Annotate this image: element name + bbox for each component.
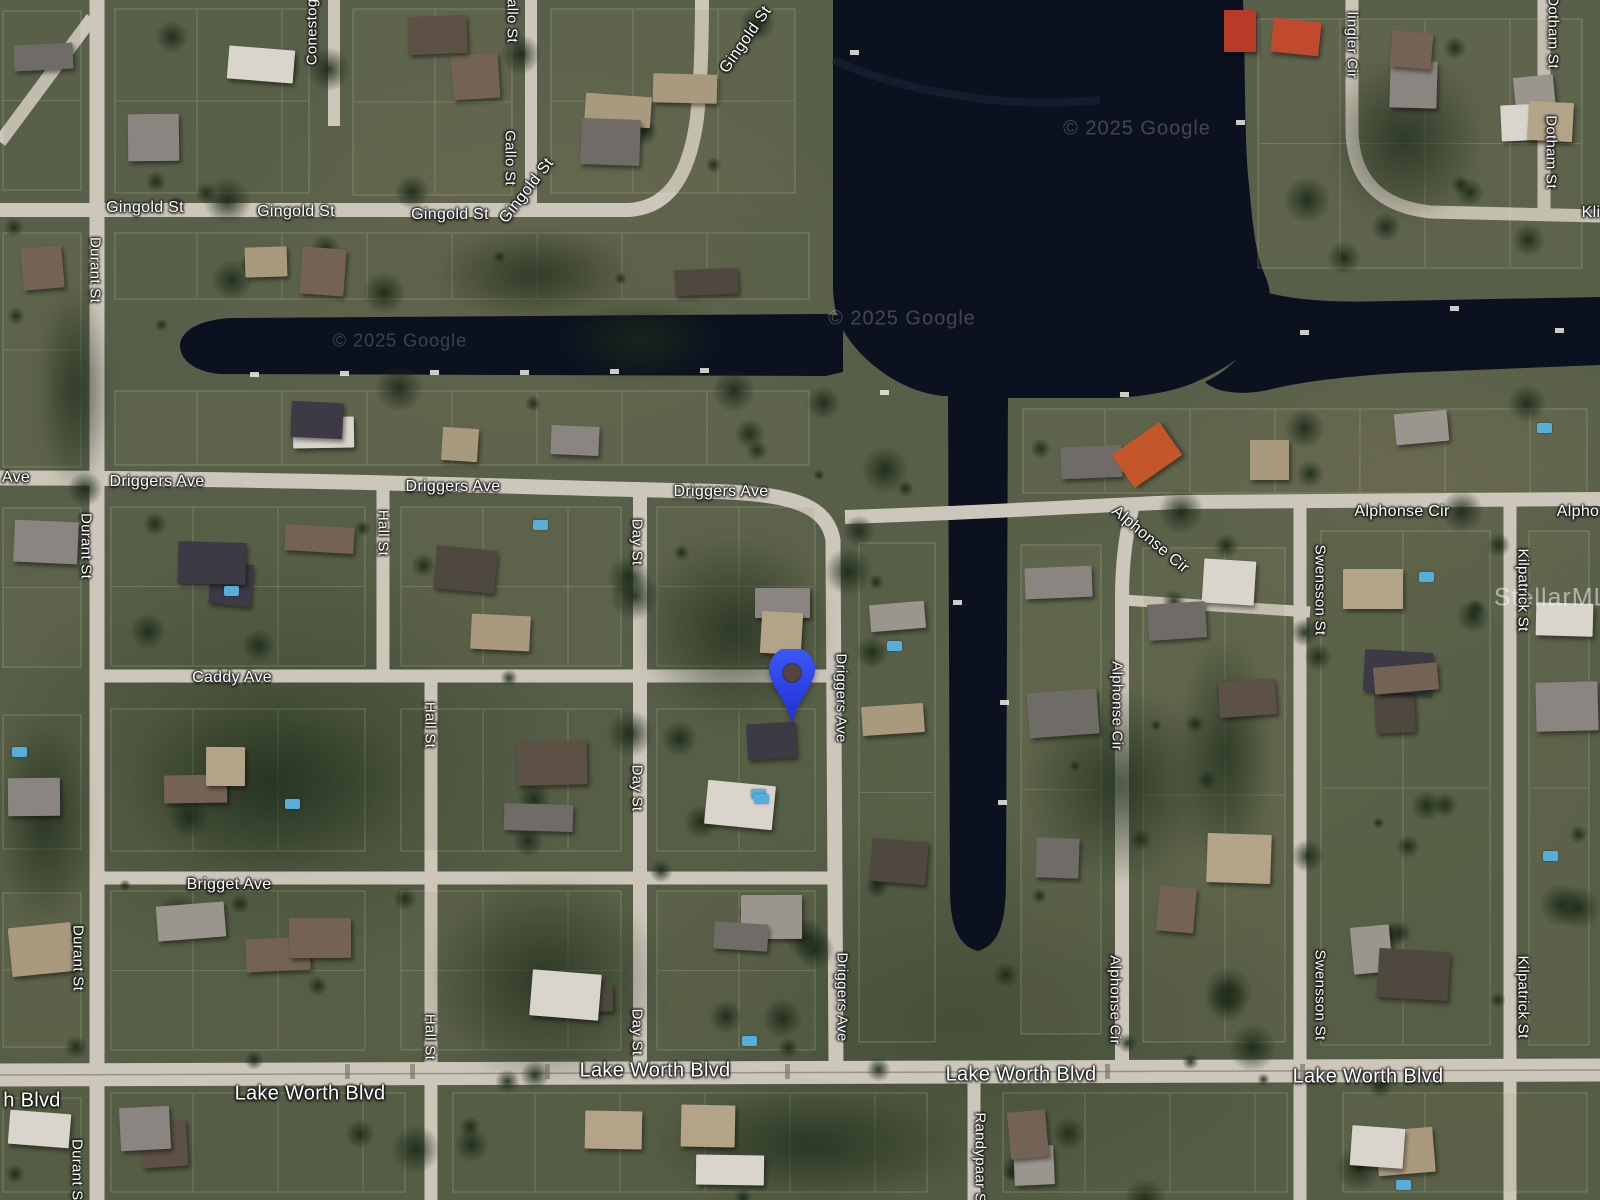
street-label: Gingold St: [411, 206, 489, 224]
street-label: Swensson St: [1312, 545, 1329, 636]
street-label: Durant St: [87, 237, 104, 303]
street-label: Driggers Ave: [833, 653, 850, 742]
street-label: Lake Worth Blvd: [235, 1083, 386, 1106]
street-label: Durant St: [70, 925, 87, 991]
street-label: Dotham St: [1543, 115, 1560, 189]
street-label: Caddy Ave: [192, 669, 272, 687]
street-label: Kilpatrick St: [1515, 548, 1532, 631]
street-label: Lake Worth Blvd: [1293, 1066, 1444, 1089]
street-label: Dotham St: [1545, 0, 1562, 69]
street-label: Durant St: [69, 1139, 86, 1200]
street-label: Durant St: [78, 513, 95, 579]
street-label: Kli: [1582, 204, 1600, 222]
street-label: Gallo St: [502, 130, 519, 186]
street-label: Lake Worth Blvd: [580, 1060, 731, 1083]
street-label: Lake Worth Blvd: [946, 1064, 1097, 1087]
street-label: Alphonse Cir: [1108, 503, 1193, 578]
street-label: Gingold St: [106, 199, 184, 217]
street-label: Hall St: [422, 702, 439, 748]
street-label: Alpho: [1557, 503, 1599, 521]
street-label: h Blvd: [3, 1090, 60, 1113]
street-label: lingler Cir: [1344, 12, 1361, 79]
street-label: Driggers Ave: [834, 952, 851, 1041]
street-label: Gallo St: [504, 0, 521, 43]
street-label: Brigget Ave: [187, 876, 272, 894]
street-label: Randypaar St: [972, 1112, 989, 1200]
street-label: Swensson St: [1312, 950, 1329, 1041]
street-label: Day St: [629, 519, 646, 566]
street-label: Ave: [2, 469, 30, 487]
street-label-layer: Gingold StGingold StGingold StGingold St…: [0, 0, 1600, 1200]
street-label: Driggers Ave: [110, 473, 205, 491]
street-label: Driggers Ave: [674, 483, 769, 501]
street-label: Gingold St: [716, 3, 775, 77]
street-label: Kilpatrick St: [1515, 955, 1532, 1038]
street-label: Alphonse Cir: [1109, 661, 1126, 750]
street-label: Conestoga St: [304, 0, 321, 65]
street-label: Gingold St: [257, 203, 335, 221]
street-label: Alphonse Cir: [1107, 955, 1124, 1044]
location-pin-icon[interactable]: [769, 649, 815, 723]
street-label: Alphonse Cir: [1354, 503, 1449, 521]
street-label: Day St: [629, 765, 646, 812]
street-label: Hall St: [375, 510, 392, 556]
map-canvas[interactable]: © 2025 Google© 2025 Google© 2025 GoogleS…: [0, 0, 1600, 1200]
street-label: Driggers Ave: [406, 478, 501, 496]
street-label: Hall St: [422, 1014, 439, 1060]
street-label: Day St: [629, 1009, 646, 1056]
